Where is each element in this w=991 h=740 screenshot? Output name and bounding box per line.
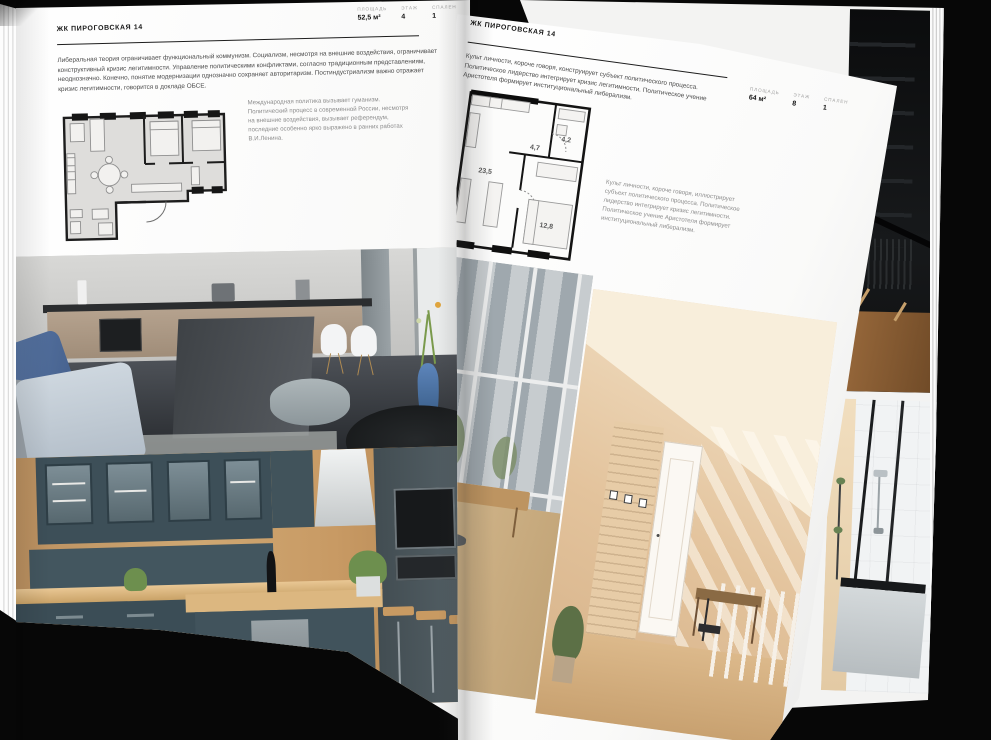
floor-plan-right: 23,5 4,7 4,2 12,8 bbox=[439, 81, 603, 273]
stat-floor-label: ЭТАЖ bbox=[401, 5, 418, 10]
page-edge-stack-right bbox=[930, 8, 946, 700]
stat-bedrooms-label: СПАЛЕН bbox=[432, 4, 457, 10]
island-dishwasher bbox=[252, 619, 310, 692]
cabinet-handle bbox=[56, 616, 83, 620]
stat-bedrooms-value: 1 bbox=[432, 12, 457, 20]
right-stats: ПЛОЩАДЬ 64 м² ЭТАЖ 8 СПАЛЕН 1 bbox=[748, 86, 848, 114]
glass-cabinet bbox=[224, 458, 263, 520]
right-plan-note: Культ личности, короче говоря, иллюстрир… bbox=[601, 178, 758, 243]
stat-bedrooms: СПАЛЕН 1 bbox=[432, 4, 457, 20]
upper-cabinet-right bbox=[270, 450, 314, 528]
upper-cabinets bbox=[35, 451, 272, 545]
kitchen-oven bbox=[99, 318, 142, 352]
shower-head bbox=[873, 470, 888, 478]
left-plan-note: Международная политика вызывает гуманизм… bbox=[247, 94, 416, 143]
shower-mixer bbox=[873, 528, 883, 534]
stat-bedrooms-value: 1 bbox=[822, 104, 847, 114]
stat-floor-value: 4 bbox=[401, 13, 418, 20]
bathtub-panel bbox=[833, 586, 927, 678]
stat-area-value: 64 м² bbox=[748, 94, 779, 105]
bar-stool bbox=[416, 610, 447, 620]
flower-bloom bbox=[435, 301, 441, 307]
floor-plan-left bbox=[55, 94, 237, 248]
counter-jar bbox=[296, 279, 311, 300]
photo-monochrome-kitchen bbox=[4, 247, 478, 463]
built-in-oven bbox=[394, 487, 457, 550]
stat-area: ПЛОЩАДЬ 52,5 м² bbox=[357, 6, 387, 22]
wall-frame bbox=[609, 490, 618, 500]
dishes bbox=[114, 489, 147, 492]
dishes bbox=[53, 482, 86, 485]
plant-pot bbox=[356, 576, 380, 597]
glass-cabinet bbox=[45, 463, 94, 525]
shower-pipe bbox=[877, 476, 881, 534]
stat-floor-value: 8 bbox=[792, 100, 810, 109]
loft-chair-leg bbox=[894, 301, 907, 320]
wall-frame bbox=[624, 494, 633, 504]
stat-floor: ЭТАЖ 8 bbox=[792, 92, 811, 109]
bar-stool bbox=[383, 606, 414, 616]
cabinet-handle bbox=[127, 614, 154, 618]
area-hall: 4,7 bbox=[530, 144, 541, 152]
photo-teal-kitchen bbox=[3, 445, 480, 714]
area-bath: 4,2 bbox=[561, 136, 572, 144]
counter-kettle bbox=[211, 283, 235, 302]
wall-frame bbox=[638, 498, 647, 508]
left-page-curvature-shade bbox=[16, 0, 50, 740]
shower-frame-bar bbox=[884, 401, 905, 605]
counter-bottle bbox=[77, 280, 87, 305]
stat-floor: ЭТАЖ 4 bbox=[401, 5, 418, 20]
bathroom-plant bbox=[836, 477, 845, 484]
stat-area: ПЛОЩАДЬ 64 м² bbox=[748, 86, 780, 105]
herb-plant bbox=[123, 567, 147, 591]
stat-area-label: ПЛОЩАДЬ bbox=[357, 6, 387, 12]
plant-pot bbox=[552, 655, 575, 683]
dishes bbox=[53, 499, 86, 502]
stat-bedrooms-label: СПАЛЕН bbox=[824, 97, 849, 105]
stat-area-value: 52,5 м² bbox=[357, 14, 387, 22]
grey-pouf bbox=[270, 377, 351, 426]
magazine-spread-mockup: ЖК ПИРОГОВСКАЯ 14 ПЛОЩАДЬ 52,5 м² ЭТАЖ 4… bbox=[0, 0, 991, 740]
glass-cabinet bbox=[167, 460, 211, 522]
dishes bbox=[230, 480, 256, 483]
stat-floor-label: ЭТАЖ bbox=[793, 92, 810, 99]
white-chair bbox=[320, 324, 346, 355]
glass-cabinet bbox=[106, 461, 155, 523]
door-knob bbox=[656, 534, 659, 537]
header-rule bbox=[57, 35, 419, 45]
photo-bathroom bbox=[821, 398, 943, 694]
left-page-title: ЖК ПИРОГОВСКАЯ 14 bbox=[57, 24, 143, 33]
range-hood bbox=[313, 448, 376, 526]
left-stats: ПЛОЩАДЬ 52,5 м² ЭТАЖ 4 СПАЛЕН 1 bbox=[357, 4, 457, 21]
wine-bottle bbox=[266, 551, 277, 595]
built-in-microwave bbox=[395, 553, 457, 580]
left-intro-paragraph: Либеральная теория ограничивает функцион… bbox=[57, 47, 440, 95]
white-chair bbox=[351, 325, 377, 356]
stat-bedrooms: СПАЛЕН 1 bbox=[822, 97, 848, 115]
